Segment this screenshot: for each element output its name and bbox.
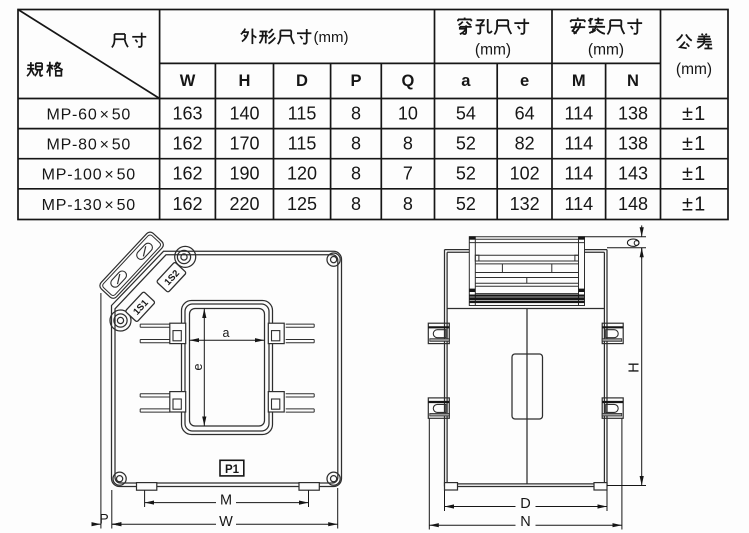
svg-text:8: 8 [351, 194, 361, 214]
svg-text:54: 54 [456, 103, 476, 123]
svg-text:D: D [520, 496, 530, 512]
svg-text:P: P [99, 511, 108, 527]
svg-text:MP-60×50: MP-60×50 [46, 106, 131, 123]
svg-text:114: 114 [564, 164, 593, 184]
svg-text:a: a [461, 72, 471, 90]
svg-text:MP-130×50: MP-130×50 [42, 197, 136, 214]
svg-text:114: 114 [564, 103, 593, 123]
svg-text:115: 115 [288, 133, 317, 153]
svg-text:120: 120 [287, 164, 317, 184]
svg-text:163: 163 [172, 103, 202, 123]
svg-text:Q: Q [401, 72, 414, 90]
svg-text:W: W [180, 72, 196, 90]
svg-text:148: 148 [618, 194, 648, 214]
svg-text:±1: ±1 [682, 103, 707, 125]
svg-text:8: 8 [351, 164, 361, 184]
svg-text:MP-100×50: MP-100×50 [42, 167, 136, 184]
svg-text:7: 7 [403, 164, 413, 184]
svg-text:e: e [520, 72, 529, 90]
svg-text:(mm): (mm) [475, 42, 511, 59]
svg-text:D: D [296, 72, 308, 90]
svg-text:8: 8 [351, 103, 361, 123]
svg-text:(mm): (mm) [588, 42, 624, 59]
svg-text:W: W [219, 514, 233, 530]
svg-text:82: 82 [515, 133, 535, 153]
svg-text:MP-80×50: MP-80×50 [46, 136, 131, 153]
svg-text:138: 138 [618, 133, 648, 153]
svg-text:8: 8 [351, 133, 361, 153]
svg-text:±1: ±1 [682, 133, 707, 155]
svg-text:190: 190 [229, 164, 259, 184]
svg-text:H: H [627, 362, 643, 372]
svg-text:H: H [239, 72, 251, 90]
svg-text:140: 140 [229, 103, 259, 123]
svg-text:(mm): (mm) [676, 61, 712, 78]
svg-text:P1: P1 [225, 464, 240, 476]
svg-text:a: a [223, 326, 230, 340]
svg-text:102: 102 [510, 164, 540, 184]
svg-text:125: 125 [287, 194, 317, 214]
svg-text:M: M [220, 492, 232, 508]
svg-text:162: 162 [172, 133, 202, 153]
svg-text:115: 115 [288, 103, 317, 123]
svg-text:P: P [350, 72, 361, 90]
svg-text:10: 10 [398, 103, 418, 123]
svg-text:52: 52 [456, 164, 476, 184]
svg-text:143: 143 [618, 164, 648, 184]
svg-text:132: 132 [510, 194, 540, 214]
svg-text:N: N [627, 72, 639, 90]
svg-text:M: M [572, 72, 586, 90]
svg-text:8: 8 [403, 133, 413, 153]
svg-text:e: e [191, 363, 205, 370]
svg-text:(mm): (mm) [314, 29, 349, 46]
svg-text:52: 52 [456, 194, 476, 214]
svg-text:64: 64 [515, 103, 535, 123]
svg-text:N: N [520, 514, 530, 530]
svg-text:±1: ±1 [682, 194, 707, 216]
svg-text:220: 220 [229, 194, 259, 214]
svg-text:170: 170 [229, 133, 259, 153]
svg-text:162: 162 [172, 194, 202, 214]
svg-text:52: 52 [456, 133, 476, 153]
svg-text:138: 138 [618, 103, 648, 123]
svg-text:114: 114 [564, 133, 593, 153]
svg-text:114: 114 [564, 194, 593, 214]
svg-text:162: 162 [172, 164, 202, 184]
svg-text:8: 8 [403, 194, 413, 214]
svg-text:±1: ±1 [682, 163, 707, 185]
